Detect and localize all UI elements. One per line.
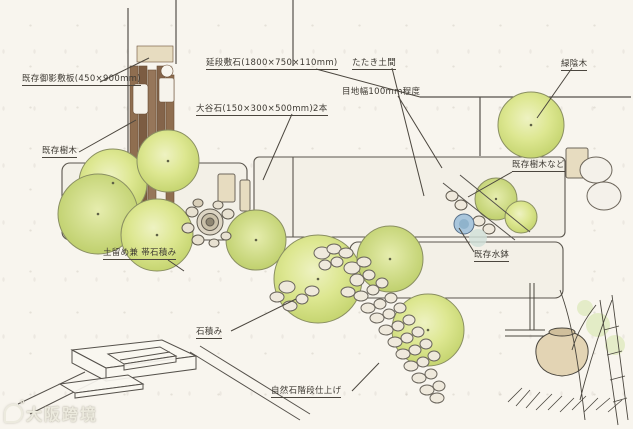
trellis	[600, 295, 628, 425]
large-stone	[587, 182, 621, 210]
label-stone-masonry: 石積み	[196, 327, 222, 339]
step-stone	[159, 78, 174, 102]
jar	[536, 330, 588, 376]
water-jar-sketch	[505, 283, 628, 425]
label-joint-width: 目地幅100mm程度	[342, 87, 420, 98]
large-stone	[580, 157, 612, 183]
watermark-logo-icon	[4, 404, 23, 423]
grass-strokes	[508, 388, 622, 412]
entry-stone-slab	[137, 46, 173, 62]
label-natural-stone-steps: 自然石階段仕上げ	[271, 386, 341, 398]
watermark-text: 大阪跨境	[26, 401, 98, 425]
label-existing-tree-right: 既存樹木など	[512, 160, 565, 172]
step-stone	[133, 84, 148, 114]
label-paving-stone: 延段敷石(1800×750×110mm)	[206, 58, 338, 70]
label-granite-slab: 既存御影敷板(450×900mm)	[22, 74, 141, 86]
label-tataki-doma: たたき土間	[352, 58, 396, 70]
watermark: 大阪跨境	[4, 401, 98, 425]
label-existing-tree-left: 既存樹木	[42, 146, 77, 158]
round-stone	[161, 65, 173, 77]
tree-canopy	[505, 201, 537, 233]
label-existing-water-basin: 既存水鉢	[474, 250, 509, 262]
garden-plan-sketch: 既存御影敷板(450×900mm) 既存樹木 延段敷石(1800×750×110…	[0, 0, 633, 429]
label-oya-stone: 大谷石(150×300×500mm)2本	[196, 104, 328, 116]
label-retaining-band: 土留め兼 帯石積み	[103, 248, 176, 260]
label-shade-tree: 緑陰木	[561, 59, 587, 71]
